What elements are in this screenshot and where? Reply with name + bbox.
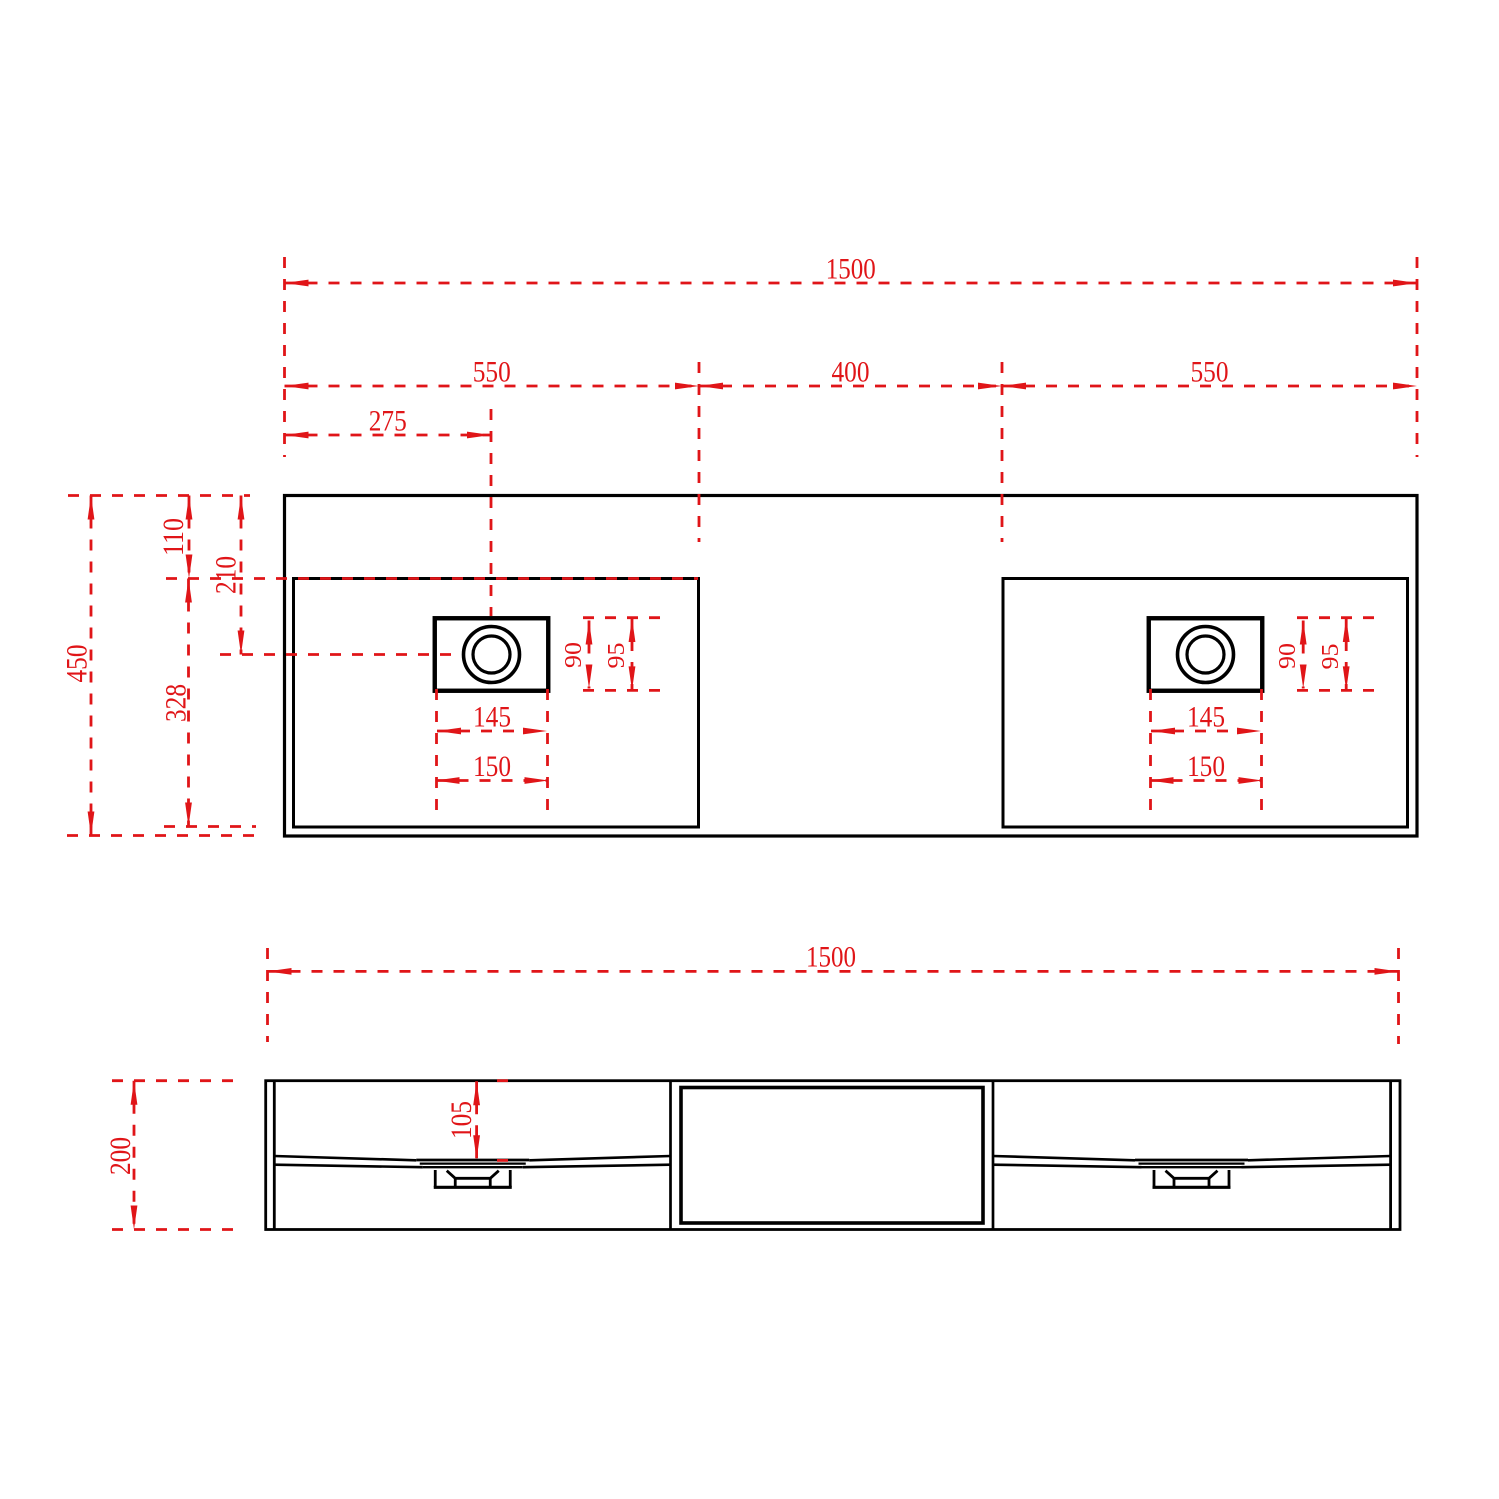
svg-text:550: 550 bbox=[1191, 356, 1229, 389]
svg-text:1500: 1500 bbox=[826, 253, 876, 286]
svg-text:1500: 1500 bbox=[806, 941, 856, 974]
svg-text:550: 550 bbox=[473, 356, 511, 389]
svg-text:145: 145 bbox=[1187, 701, 1225, 734]
svg-text:90: 90 bbox=[1275, 643, 1301, 669]
svg-text:150: 150 bbox=[473, 750, 511, 783]
svg-text:90: 90 bbox=[561, 642, 587, 668]
svg-text:275: 275 bbox=[369, 405, 407, 438]
svg-text:110: 110 bbox=[157, 518, 190, 556]
svg-text:150: 150 bbox=[1187, 750, 1225, 783]
svg-text:450: 450 bbox=[61, 645, 94, 683]
svg-text:145: 145 bbox=[473, 701, 511, 734]
svg-text:210: 210 bbox=[210, 556, 243, 594]
svg-text:200: 200 bbox=[104, 1137, 137, 1175]
svg-text:105: 105 bbox=[445, 1101, 478, 1139]
svg-text:400: 400 bbox=[832, 356, 870, 389]
svg-text:95: 95 bbox=[604, 643, 630, 669]
svg-text:328: 328 bbox=[160, 684, 193, 722]
svg-text:95: 95 bbox=[1318, 644, 1344, 670]
